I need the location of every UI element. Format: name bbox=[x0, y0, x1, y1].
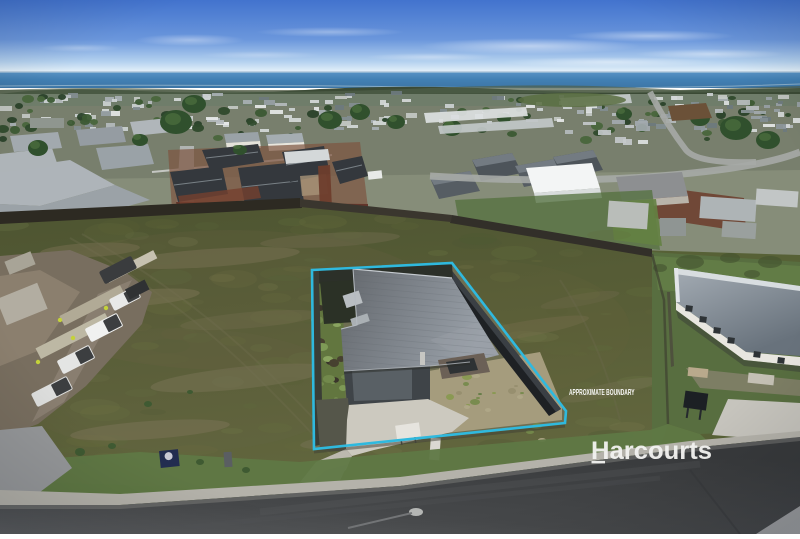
svg-text:Harcourts: Harcourts bbox=[591, 438, 712, 465]
svg-text:APPROXIMATE BOUNDARY: APPROXIMATE BOUNDARY bbox=[569, 387, 635, 397]
